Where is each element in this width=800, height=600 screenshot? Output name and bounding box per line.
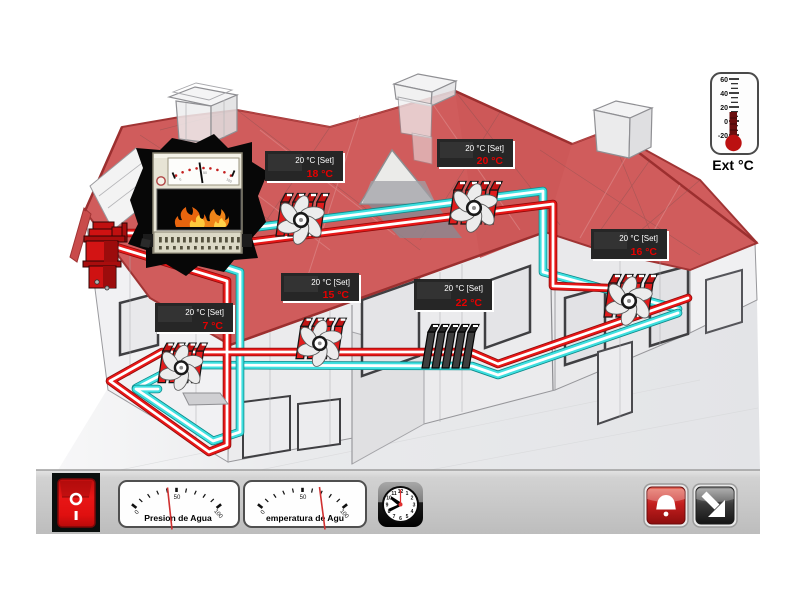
svg-text:Ext °C: Ext °C — [712, 157, 753, 173]
svg-text:15 °C: 15 °C — [323, 289, 350, 301]
svg-text:3: 3 — [413, 502, 416, 508]
svg-text:5: 5 — [406, 514, 409, 520]
svg-text:7: 7 — [393, 514, 396, 520]
svg-text:60: 60 — [720, 77, 728, 84]
svg-text:50: 50 — [300, 495, 307, 501]
svg-text:20 °C [Set]: 20 °C [Set] — [619, 234, 658, 243]
svg-text:20 °C: 20 °C — [477, 155, 504, 167]
svg-text:7 °C: 7 °C — [202, 320, 223, 332]
svg-text:6: 6 — [399, 516, 402, 522]
svg-text:emperatura de Agu: emperatura de Agu — [266, 513, 344, 523]
svg-text:1: 1 — [406, 491, 409, 497]
svg-text:16 °C: 16 °C — [631, 246, 658, 258]
svg-text:20: 20 — [720, 105, 728, 112]
svg-text:Presion de Agua: Presion de Agua — [144, 513, 212, 523]
svg-text:20 °C [Set]: 20 °C [Set] — [185, 308, 224, 317]
svg-text:22 °C: 22 °C — [456, 297, 483, 309]
svg-text:20 °C [Set]: 20 °C [Set] — [311, 278, 350, 287]
svg-text:20 °C [Set]: 20 °C [Set] — [444, 284, 483, 293]
svg-text:40: 40 — [720, 91, 728, 98]
svg-text:0: 0 — [724, 119, 728, 126]
svg-text:4: 4 — [411, 509, 414, 515]
svg-text:50: 50 — [203, 171, 207, 175]
svg-text:50: 50 — [174, 495, 181, 501]
svg-text:20 °C [Set]: 20 °C [Set] — [465, 144, 504, 153]
svg-text:9: 9 — [386, 502, 389, 508]
svg-text:20 °C [Set]: 20 °C [Set] — [295, 156, 334, 165]
svg-text:18 °C: 18 °C — [307, 168, 334, 180]
svg-text:11: 11 — [391, 491, 397, 497]
svg-text:2: 2 — [411, 496, 414, 502]
